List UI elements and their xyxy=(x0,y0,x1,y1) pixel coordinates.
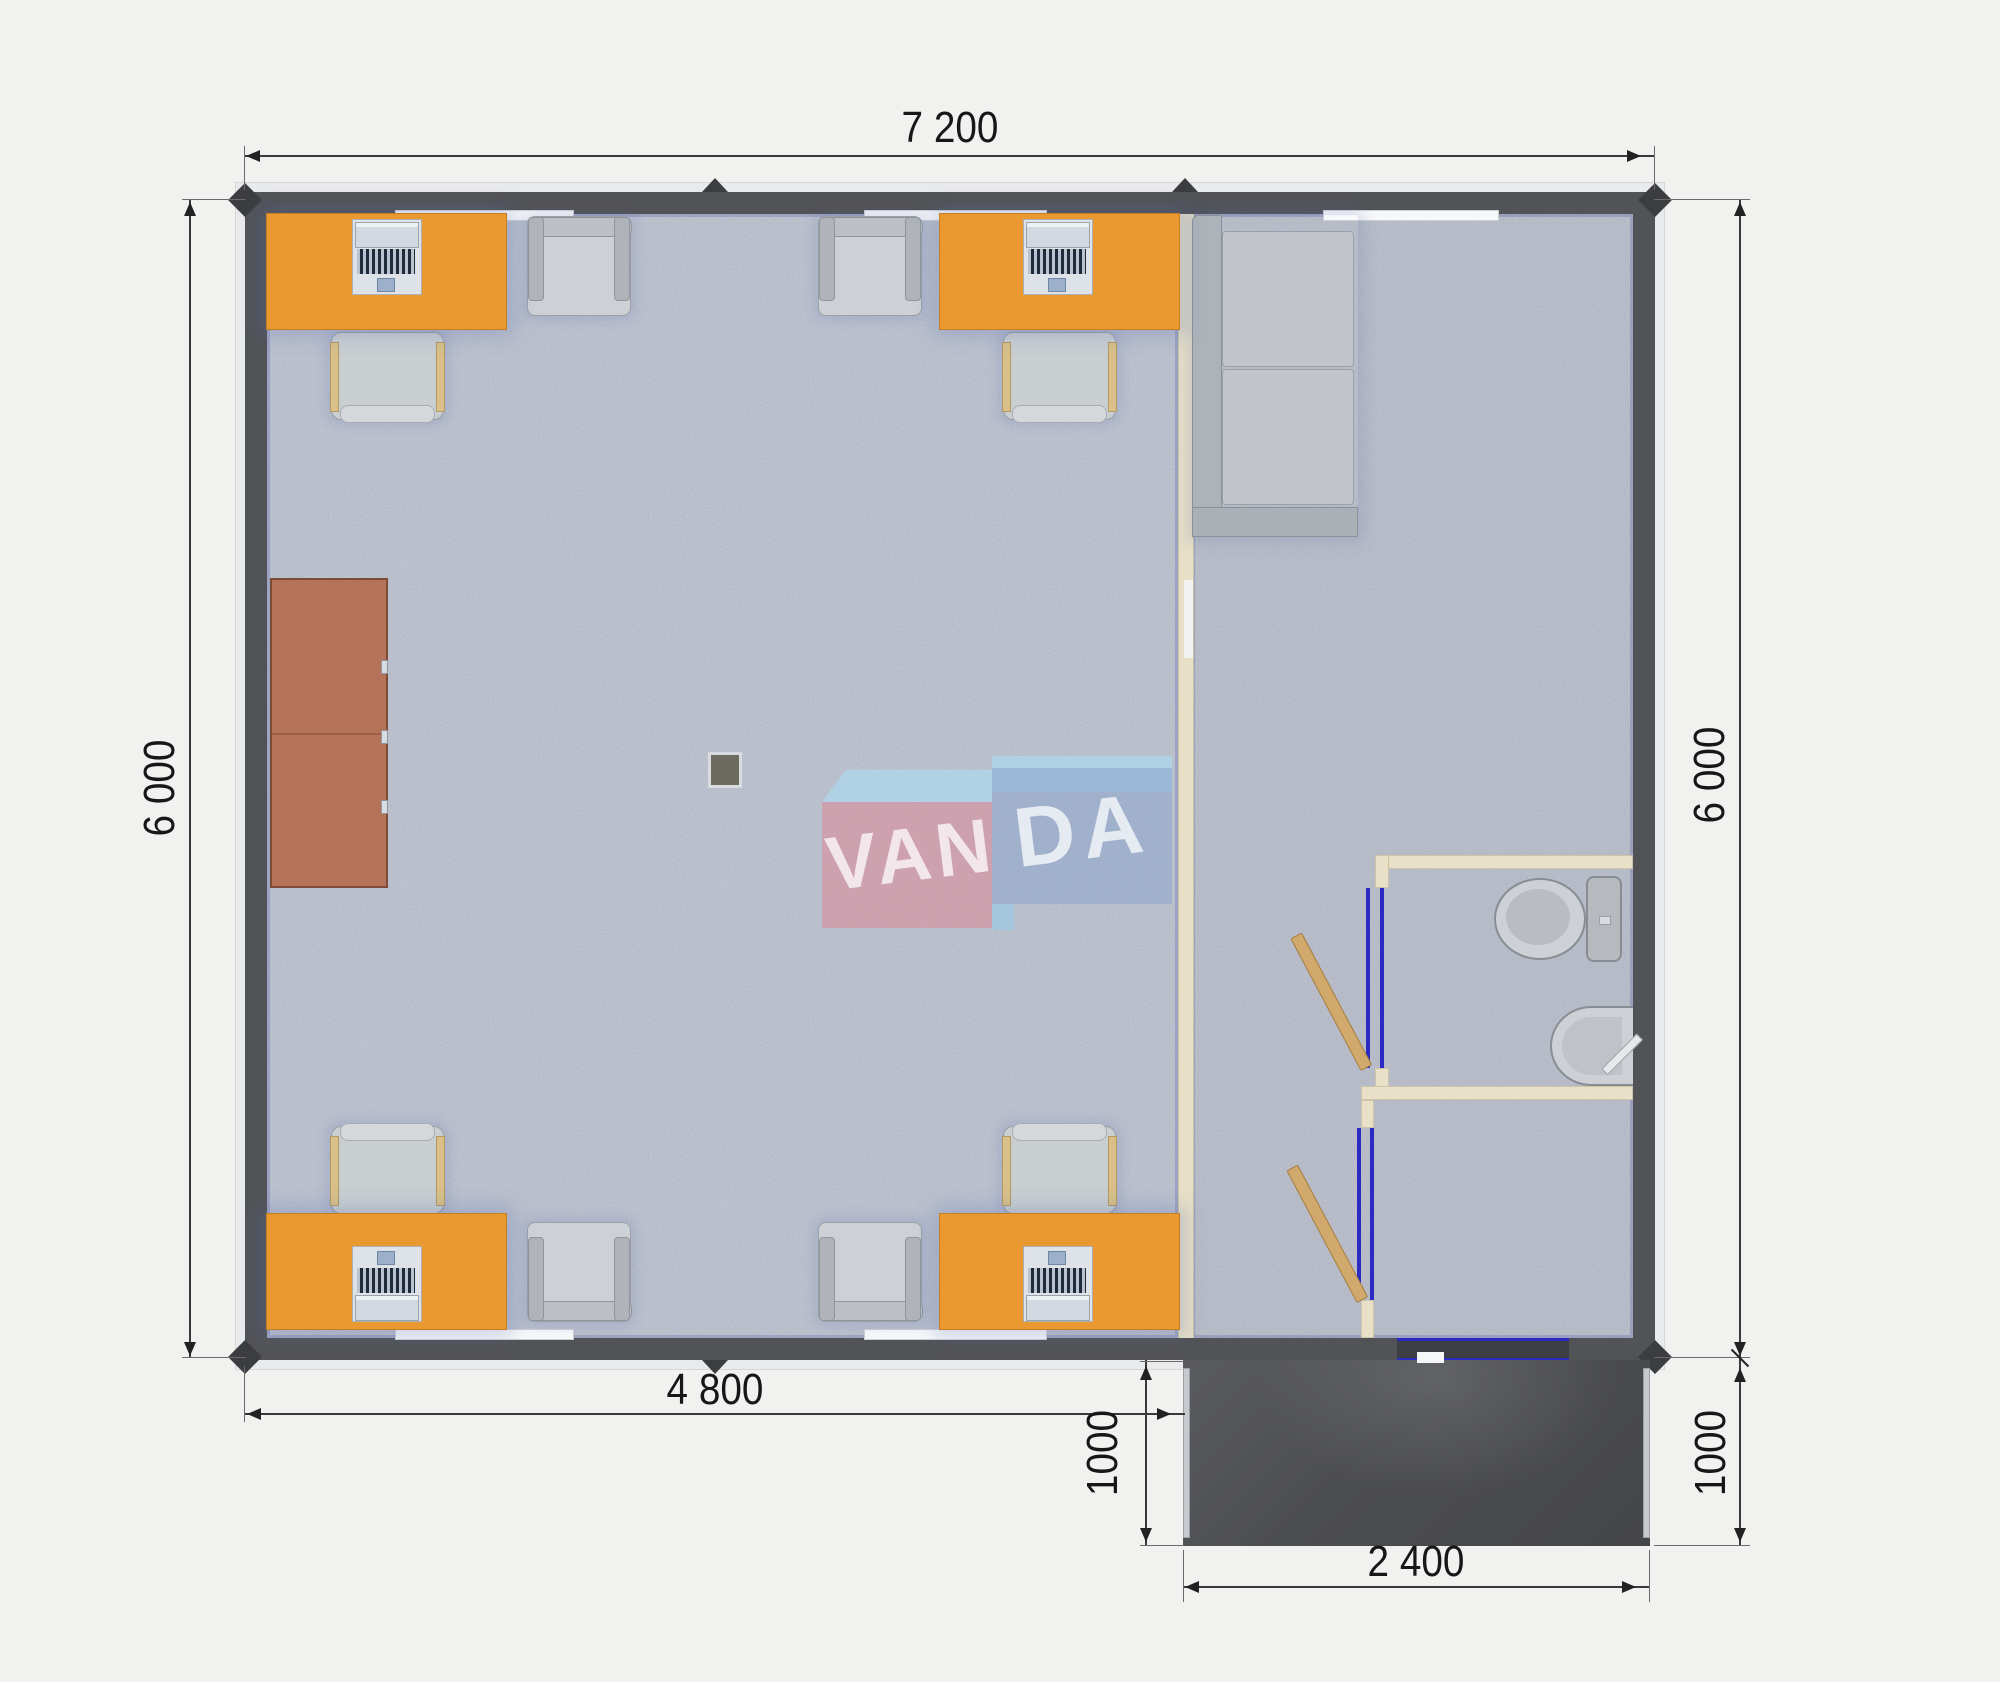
mouse-icon xyxy=(1048,1251,1066,1265)
dim-ext xyxy=(1140,1361,1184,1362)
floor-plan-canvas: VAN DA 7 200 6 000 6 000 1000 4 800 1000… xyxy=(0,0,2000,1682)
floor-hatch xyxy=(708,752,742,788)
computer-bottom-left xyxy=(352,1246,422,1322)
keyboard-icon xyxy=(357,1268,415,1293)
dim-line-porch-width xyxy=(1183,1586,1650,1588)
dim-ext xyxy=(1654,1357,1750,1358)
hall-wall-upper xyxy=(1361,1100,1374,1128)
dim-label-porch-width: 2 400 xyxy=(1328,1540,1504,1584)
dim-label-left: 6 000 xyxy=(138,735,182,841)
keyboard-icon xyxy=(1028,1268,1086,1293)
dim-line-porch-left xyxy=(1145,1360,1147,1546)
sofa xyxy=(1192,215,1358,537)
dim-label-office-width: 4 800 xyxy=(627,1368,803,1412)
dim-ext xyxy=(182,1357,246,1358)
bathroom-wall-left-upper xyxy=(1375,855,1389,888)
dim-arrow xyxy=(1734,1528,1746,1542)
dim-ext xyxy=(1654,1545,1750,1546)
dim-ext xyxy=(244,1366,245,1422)
door-step xyxy=(1417,1352,1444,1363)
dim-arrow xyxy=(246,150,260,162)
porch-post-left xyxy=(1183,1368,1190,1538)
computer-top-right xyxy=(1023,219,1093,295)
toilet-tank xyxy=(1586,876,1622,962)
dim-ext xyxy=(1140,1545,1184,1546)
office-chair-bottom-right xyxy=(1003,1126,1116,1214)
hall-door-frame-inner xyxy=(1370,1128,1374,1300)
hall-wall-lower xyxy=(1361,1300,1374,1338)
dim-label-porch-right: 1000 xyxy=(1689,1405,1733,1502)
monitor-icon xyxy=(1026,222,1090,248)
dim-ext xyxy=(1649,1550,1650,1602)
dim-arrow xyxy=(1185,1581,1199,1593)
cabinet xyxy=(270,578,388,888)
office-chair-bottom-left xyxy=(331,1126,444,1214)
watermark-tail xyxy=(992,904,1014,930)
dim-ext xyxy=(1654,199,1750,200)
porch-post-right xyxy=(1643,1368,1650,1538)
mouse-icon xyxy=(1048,278,1066,292)
bathroom-wall-bottom xyxy=(1361,1086,1633,1100)
dim-arrow xyxy=(184,1342,196,1356)
porch xyxy=(1183,1360,1650,1546)
dim-label-top: 7 200 xyxy=(862,106,1038,150)
module-joint-top-2 xyxy=(1172,178,1198,192)
keyboard-icon xyxy=(357,249,415,274)
dim-ext xyxy=(1654,146,1655,190)
partition-door-opening xyxy=(1184,580,1193,658)
computer-bottom-right xyxy=(1023,1246,1093,1322)
monitor-icon xyxy=(355,1295,419,1321)
dim-arrow xyxy=(1622,1581,1636,1593)
dim-arrow xyxy=(1157,1408,1171,1420)
armchair-bottom-1 xyxy=(527,1222,631,1322)
dim-label-porch-left: 1000 xyxy=(1081,1405,1125,1502)
dim-arrow xyxy=(1627,150,1641,162)
dim-line-top xyxy=(245,155,1655,157)
watermark-band-left xyxy=(822,770,992,802)
dim-arrow xyxy=(1140,1366,1152,1380)
office-chair-top-right xyxy=(1003,332,1116,420)
keyboard-icon xyxy=(1028,249,1086,274)
armchair-top-1 xyxy=(527,216,631,316)
window-bottom-1 xyxy=(395,1329,574,1340)
dim-arrow xyxy=(1734,202,1746,216)
sink xyxy=(1550,1006,1633,1086)
hall-door-frame-outer xyxy=(1357,1128,1361,1300)
armchair-top-2 xyxy=(818,216,922,316)
dim-ext xyxy=(1183,1550,1184,1602)
computer-top-left xyxy=(352,219,422,295)
watermark-text-da: DA xyxy=(999,773,1166,888)
monitor-icon xyxy=(355,222,419,248)
toilet-bowl xyxy=(1494,878,1586,960)
dim-label-right: 6 000 xyxy=(1688,722,1732,828)
dim-ext xyxy=(244,146,245,190)
bathroom-wall-top xyxy=(1375,855,1633,869)
monitor-icon xyxy=(1026,1295,1090,1321)
mouse-icon xyxy=(377,1251,395,1265)
dim-arrow xyxy=(247,1408,261,1420)
mouse-icon xyxy=(377,278,395,292)
dim-arrow xyxy=(184,202,196,216)
window-bottom-2 xyxy=(864,1329,1047,1340)
dim-ext xyxy=(182,199,246,200)
bathroom-door-frame-outer xyxy=(1366,888,1370,1068)
module-joint-top-1 xyxy=(702,178,728,192)
office-chair-top-left xyxy=(331,332,444,420)
dim-arrow xyxy=(1734,1368,1746,1382)
dim-line-left xyxy=(189,200,191,1358)
armchair-bottom-2 xyxy=(818,1222,922,1322)
dim-arrow xyxy=(1140,1528,1152,1542)
bathroom-door-frame-inner xyxy=(1380,888,1384,1068)
